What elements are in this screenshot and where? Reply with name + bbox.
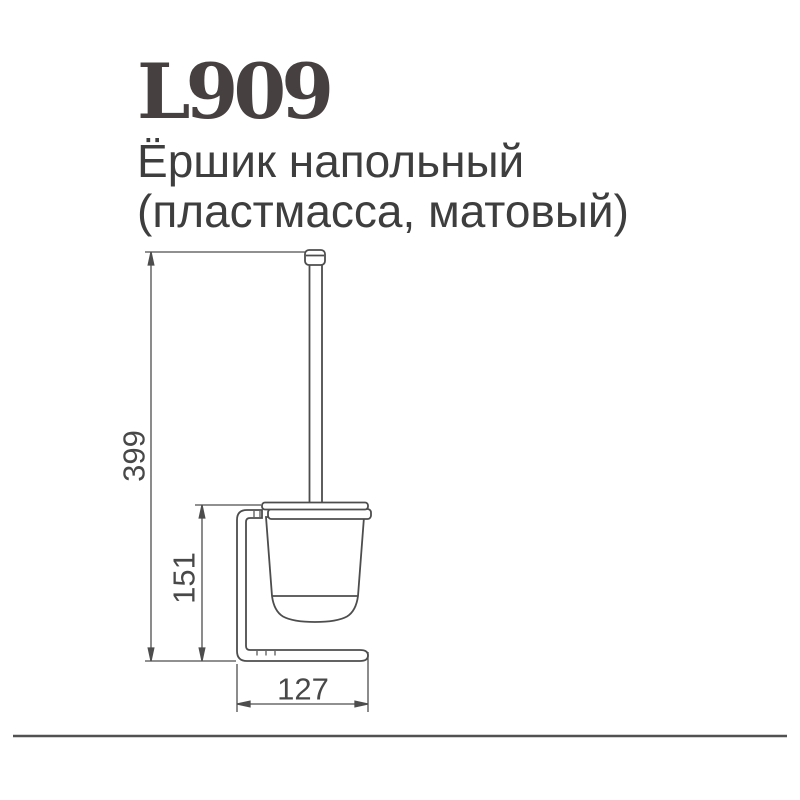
arrowhead-up xyxy=(199,505,205,518)
arrowhead-down xyxy=(199,648,205,661)
handle-knob xyxy=(305,250,325,265)
technical-drawing: 399 151 127 xyxy=(0,0,800,800)
lid-plate-upper xyxy=(262,503,368,510)
arrowhead-right xyxy=(355,701,368,707)
arrowhead-left xyxy=(237,701,250,707)
dim-label-151: 151 xyxy=(167,552,202,604)
product-sheet: L909 Ёршик напольный (пластмасса, матовы… xyxy=(0,0,800,800)
arrowhead-up xyxy=(148,252,154,265)
arrowhead-down xyxy=(148,648,154,661)
dim-label-127: 127 xyxy=(277,672,329,707)
lid-plate-lower xyxy=(268,509,371,519)
cup-outline xyxy=(266,517,364,622)
handle-rod xyxy=(310,263,323,504)
brush-holder-line-art xyxy=(237,250,371,661)
dim-label-399: 399 xyxy=(117,430,152,482)
